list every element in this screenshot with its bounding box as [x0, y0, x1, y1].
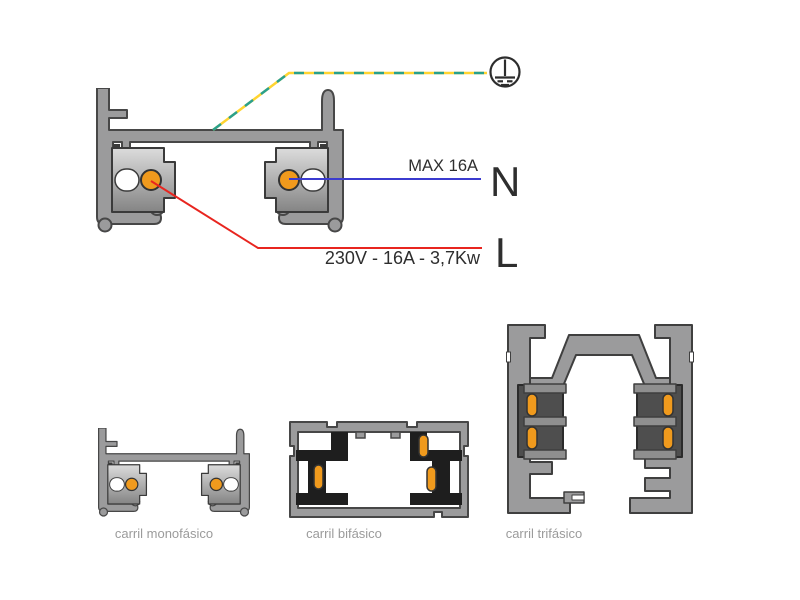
earth-wire [213, 73, 487, 130]
power-spec-label: 230V - 16A - 3,7Kw [290, 249, 480, 268]
neutral-label: N [490, 160, 520, 204]
biphase-insulator-right [410, 432, 462, 505]
line-label: L [495, 231, 518, 275]
triphase-figure [503, 320, 698, 520]
caption-biphase: carril bifásico [264, 526, 424, 541]
ground-icon [491, 58, 520, 87]
biphase-figure [283, 417, 475, 522]
diagram-canvas: MAX 16A N L 230V - 16A - 3,7Kw [0, 0, 800, 600]
caption-monophase: carril monofásico [84, 526, 244, 541]
line-wire [151, 181, 482, 248]
small-monophase-figure [98, 428, 250, 518]
caption-triphase: carril trifásico [464, 526, 624, 541]
max-current-label: MAX 16A [380, 158, 478, 175]
